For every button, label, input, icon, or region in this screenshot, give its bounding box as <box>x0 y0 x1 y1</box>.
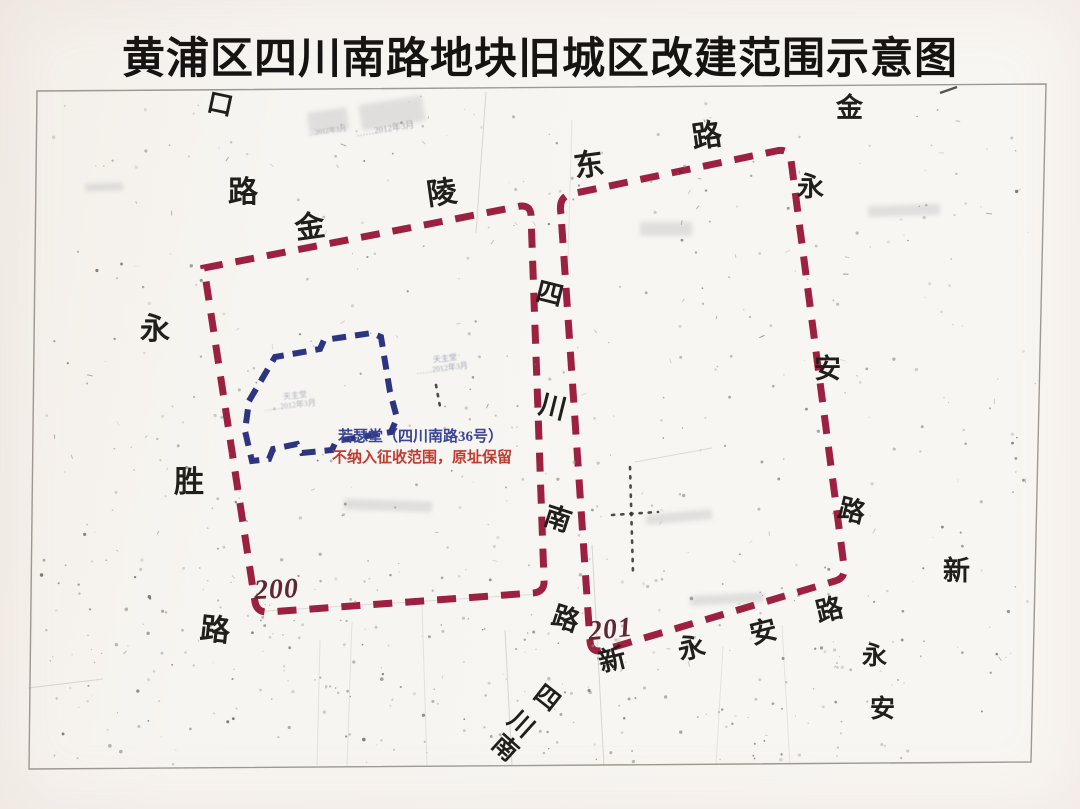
street-char-label: 口 <box>205 90 236 121</box>
stamp-smudge <box>640 222 692 236</box>
street-char-label: 路 <box>228 178 258 208</box>
block-200-label: 200 <box>253 575 299 605</box>
street-char-label: 安 <box>870 697 895 722</box>
stamp-smudge <box>85 182 123 191</box>
pen-tick-mark <box>940 87 957 93</box>
street-char-label: 安 <box>814 356 841 383</box>
street-char-label: 路 <box>690 120 724 154</box>
street-char-label: 陵 <box>425 177 459 211</box>
church-preserve-note: 不纳入征收范围，原址保留 <box>332 449 512 468</box>
street-char-label: 路 <box>199 615 232 648</box>
street-char-label: 永 <box>797 174 824 201</box>
street-char-label: 胜 <box>174 468 204 498</box>
map-area: 口路金陵东路金永安路新永安四川南路新永安路四川南永胜路 天主堂……2012年3月… <box>0 0 1080 809</box>
block-201-label: 201 <box>587 614 635 647</box>
street-char-label: 东 <box>572 149 606 183</box>
church-name-note: 若瑟堂（四川南路36号） <box>338 428 512 447</box>
scanned-map-page: 黄浦区四川南路地块旧城区改建范围示意图 <box>0 0 1080 809</box>
redline-area-200-boundary <box>204 206 544 612</box>
church-annotation: 若瑟堂（四川南路36号） 不纳入征收范围，原址保留 <box>338 428 512 468</box>
street-char-label: 金 <box>836 95 863 122</box>
street-char-label: 永 <box>140 315 170 345</box>
street-char-label: 新 <box>943 558 970 585</box>
street-char-label: 永 <box>862 644 887 669</box>
redline-area-201-boundary <box>560 150 844 651</box>
street-char-label: 金 <box>293 211 327 245</box>
